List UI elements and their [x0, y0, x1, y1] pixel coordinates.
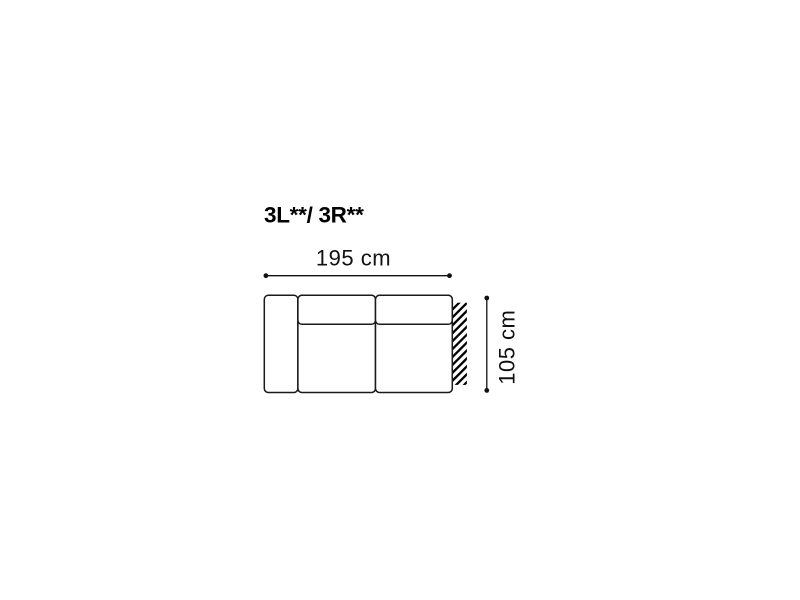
svg-text:3L**/ 3R**: 3L**/ 3R**	[264, 203, 364, 228]
svg-text:195 cm: 195 cm	[316, 246, 391, 271]
svg-text:105 cm: 105 cm	[494, 310, 519, 385]
